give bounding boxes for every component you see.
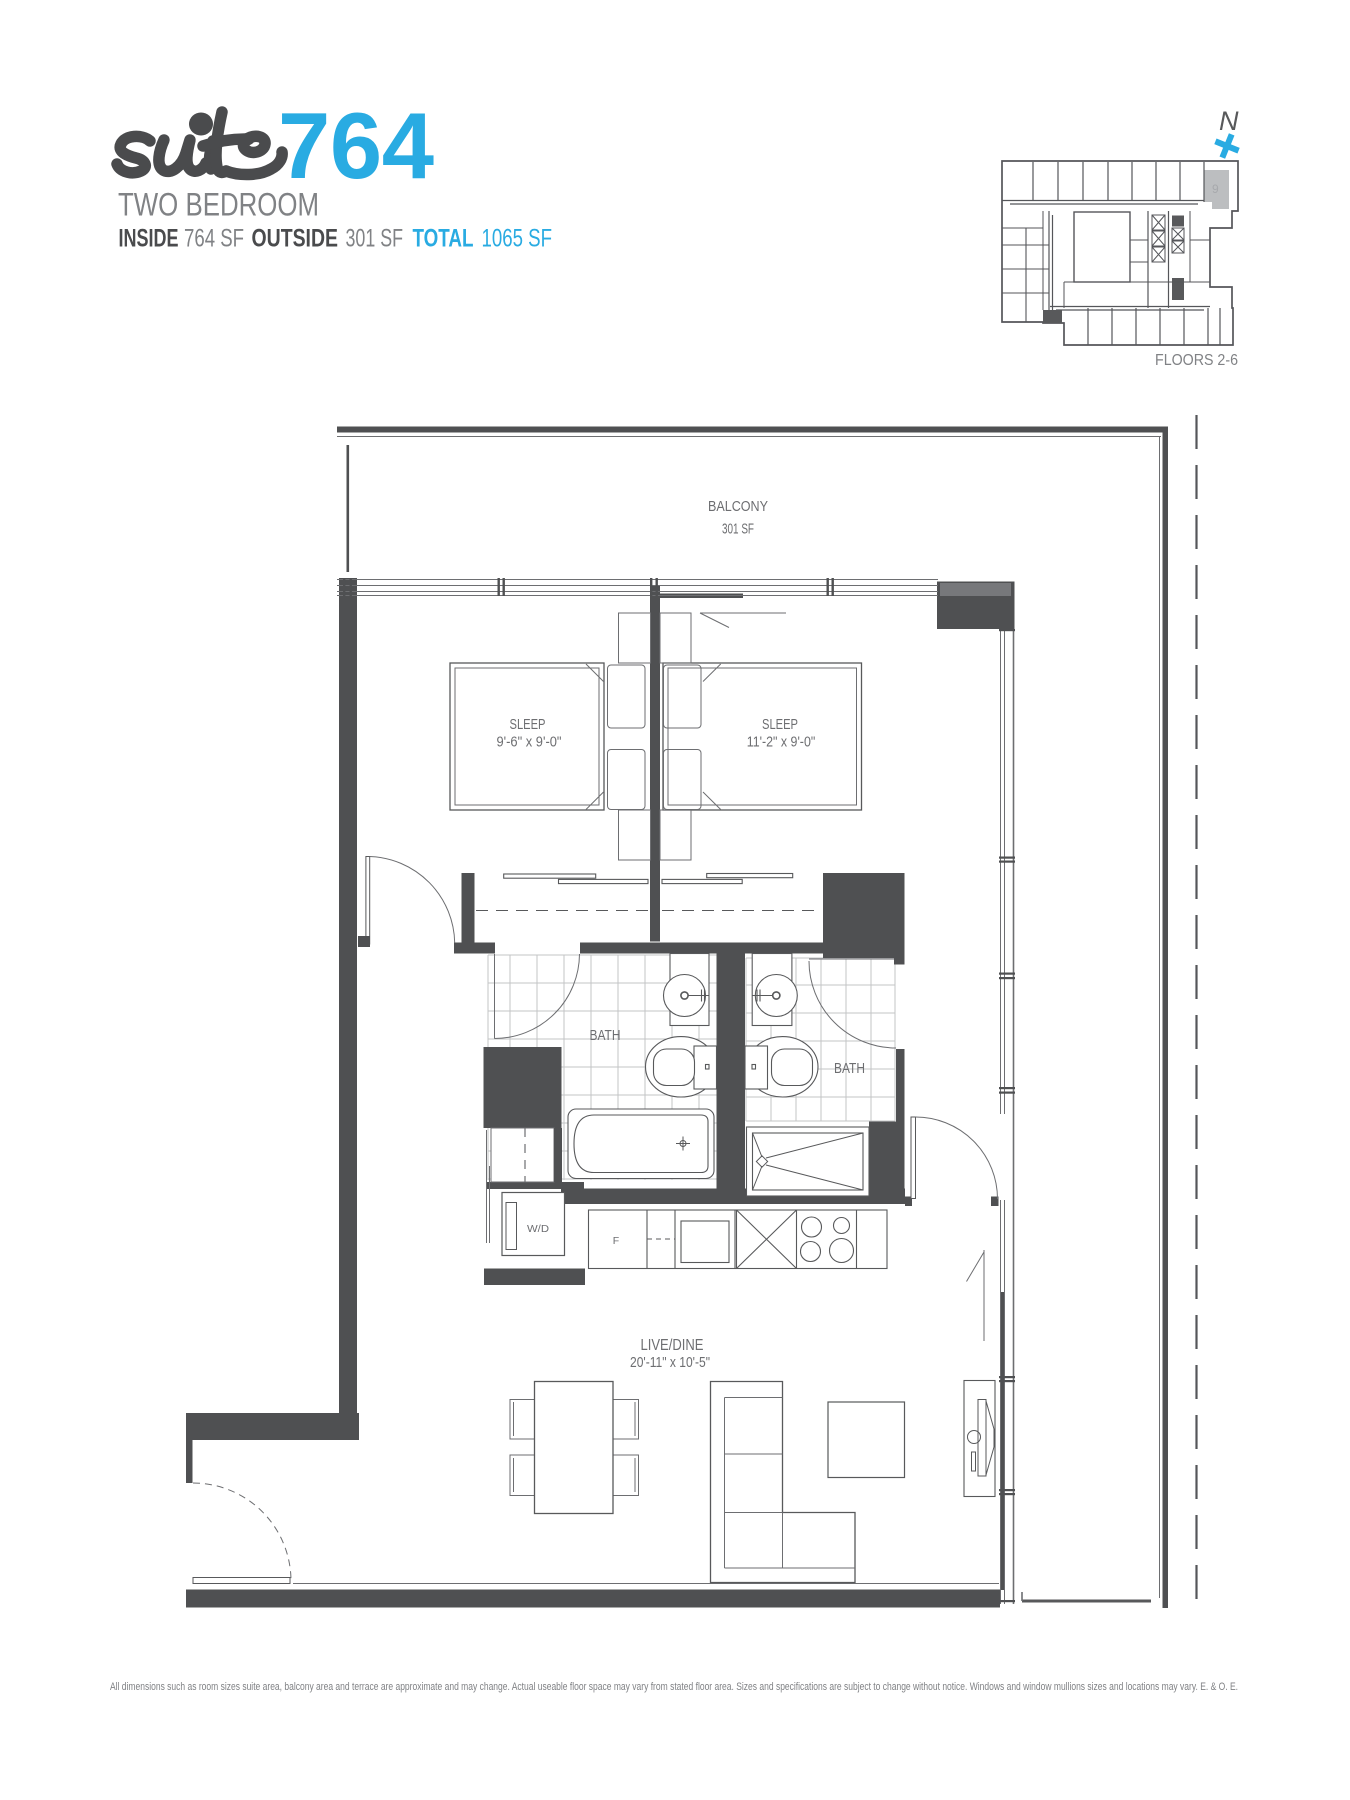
svg-text:11'-2" x 9'-0": 11'-2" x 9'-0" xyxy=(747,735,816,751)
svg-text:INSIDE: INSIDE xyxy=(119,225,179,253)
svg-text:9: 9 xyxy=(1212,182,1219,196)
svg-text:OUTSIDE: OUTSIDE xyxy=(252,225,339,253)
svg-text:BATH: BATH xyxy=(834,1061,865,1077)
svg-text:F: F xyxy=(613,1235,619,1247)
svg-text:BALCONY: BALCONY xyxy=(708,499,768,515)
svg-text:1065 SF: 1065 SF xyxy=(482,225,553,253)
svg-text:TWO BEDROOM: TWO BEDROOM xyxy=(118,187,319,223)
svg-text:All dimensions such as room si: All dimensions such as room sizes suite … xyxy=(110,1681,1238,1693)
svg-text:20'-11" x 10'-5": 20'-11" x 10'-5" xyxy=(630,1354,710,1371)
svg-text:N: N xyxy=(1219,106,1239,136)
svg-text:FLOORS 2-6: FLOORS 2-6 xyxy=(1155,352,1238,369)
svg-text:LIVE/DINE: LIVE/DINE xyxy=(641,1337,704,1354)
svg-text:9'-6" x 9'-0": 9'-6" x 9'-0" xyxy=(497,735,562,751)
svg-text:764 SF: 764 SF xyxy=(184,225,244,253)
svg-text:301 SF: 301 SF xyxy=(722,522,754,538)
svg-text:TOTAL: TOTAL xyxy=(413,225,474,253)
svg-text:W/D: W/D xyxy=(527,1223,549,1235)
svg-text:764: 764 xyxy=(278,93,434,198)
svg-text:301 SF: 301 SF xyxy=(346,225,404,253)
svg-text:SLEEP: SLEEP xyxy=(762,717,798,733)
svg-text:BATH: BATH xyxy=(590,1028,621,1044)
svg-text:SLEEP: SLEEP xyxy=(510,717,546,733)
